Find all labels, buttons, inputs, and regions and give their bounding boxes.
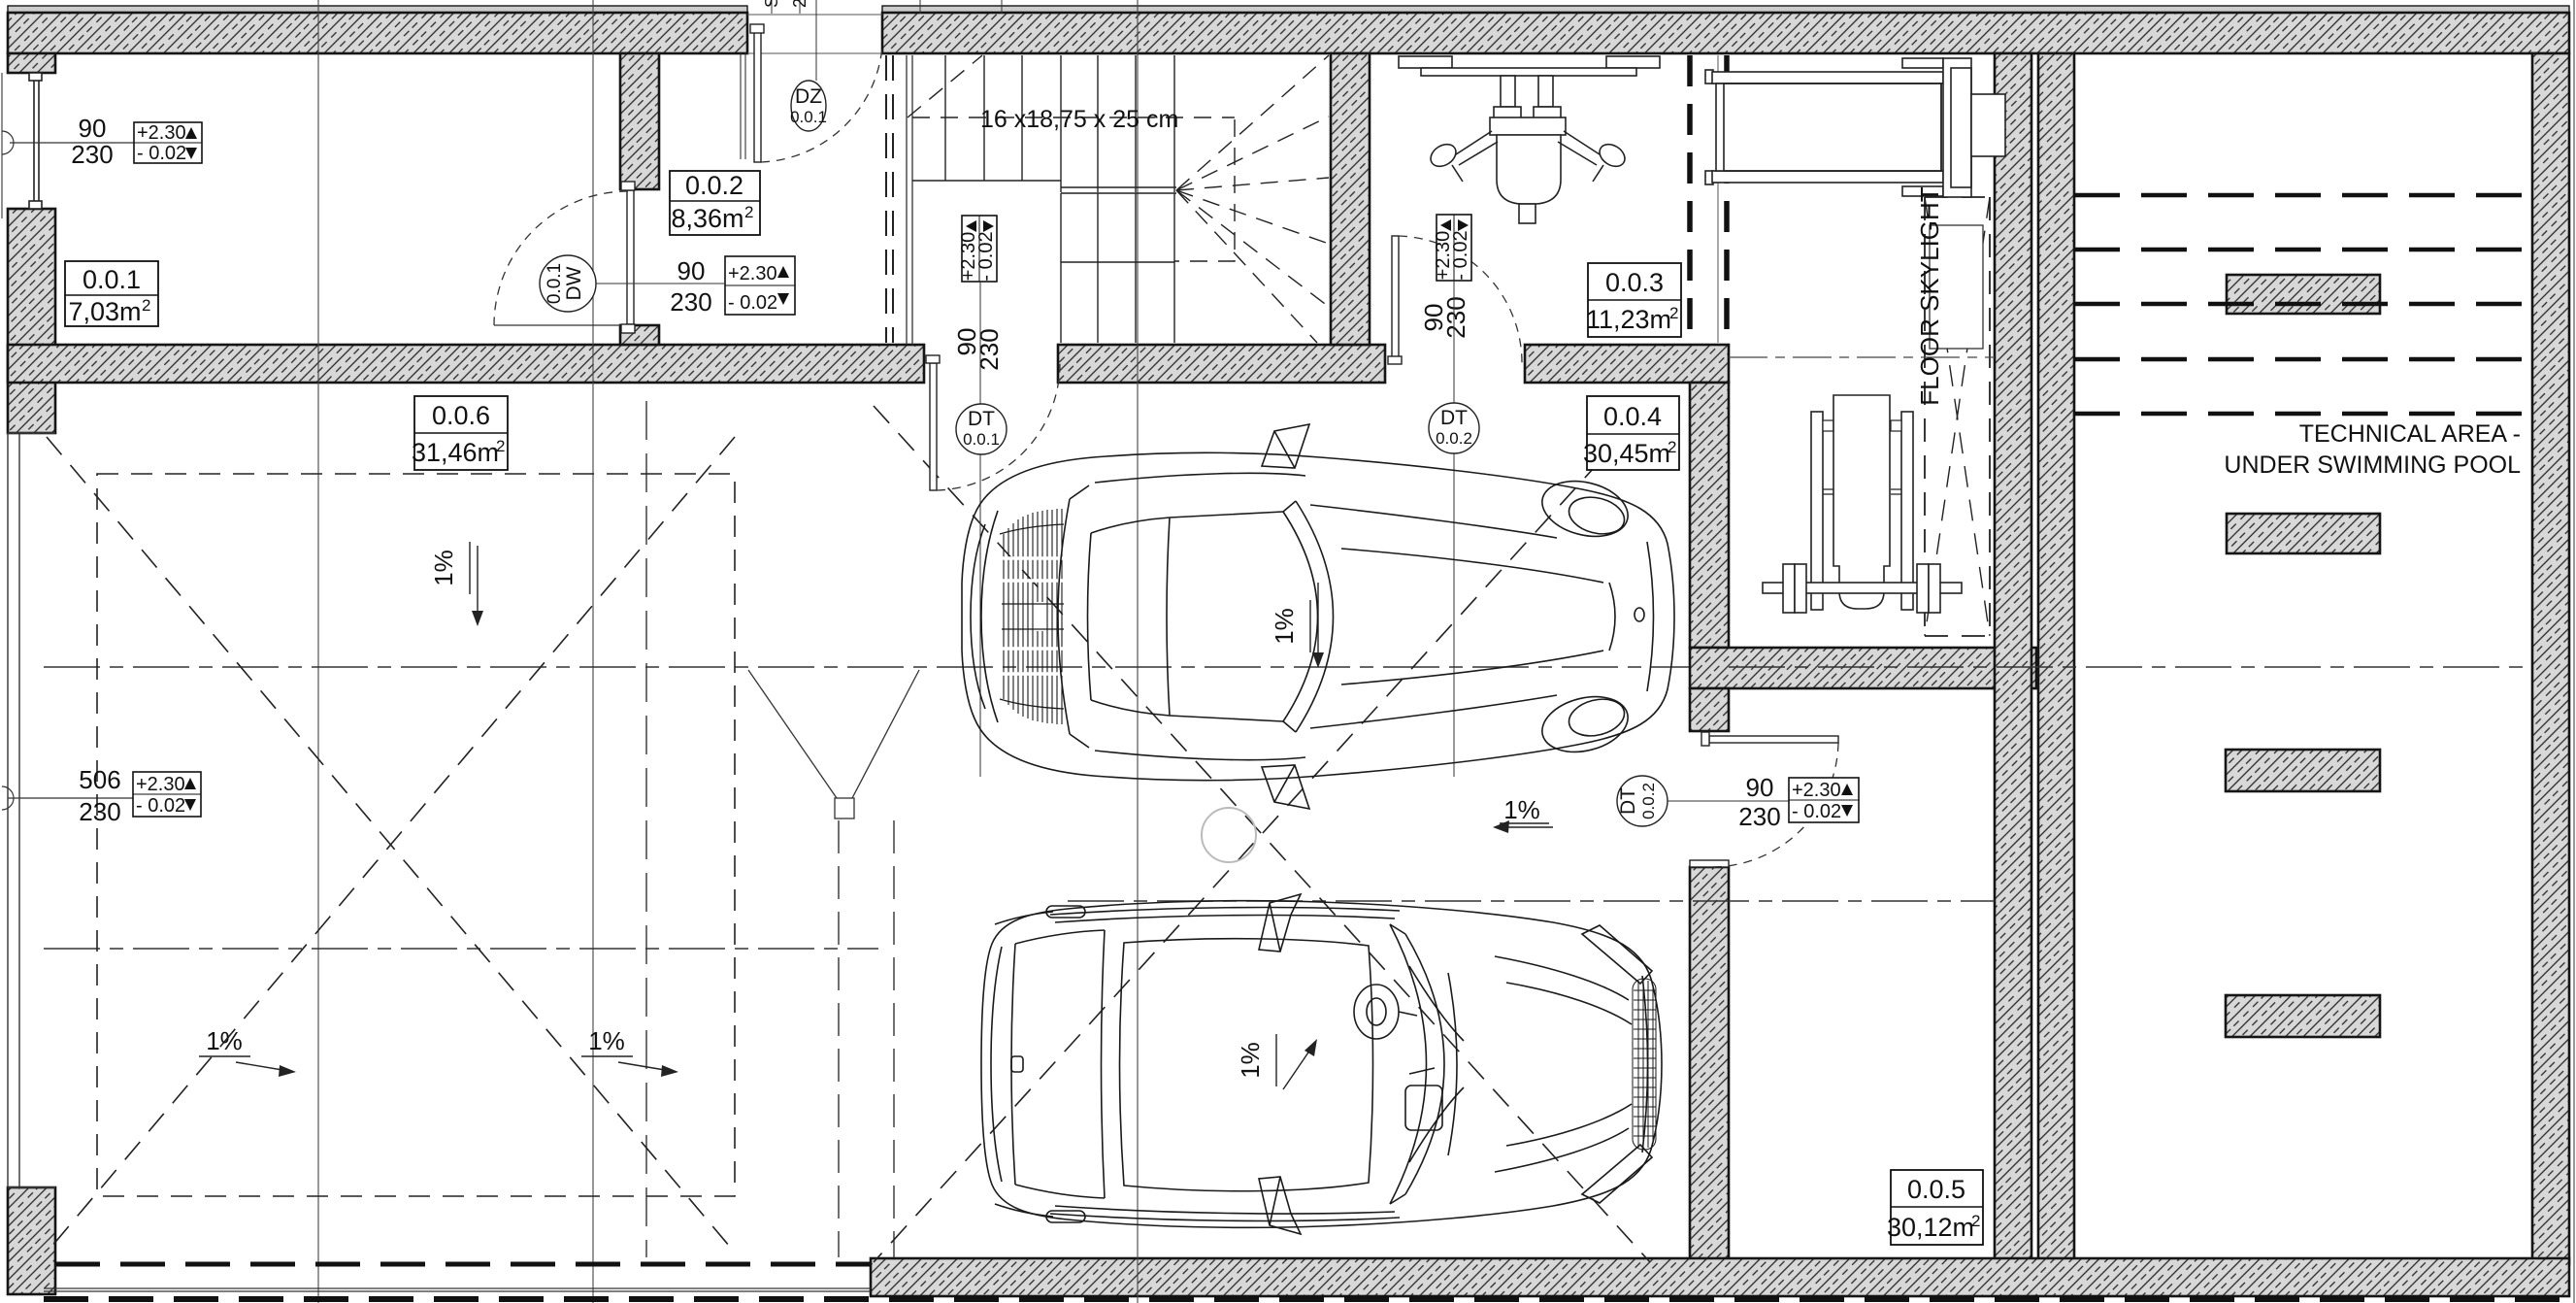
svg-text:- 0.02: - 0.02	[728, 292, 777, 314]
svg-text:1%: 1%	[206, 1026, 243, 1055]
svg-text:230: 230	[974, 328, 1004, 370]
svg-text:2: 2	[744, 203, 753, 221]
svg-text:0.0.5: 0.0.5	[1907, 1175, 1965, 1204]
svg-text:- 0.02: - 0.02	[1450, 230, 1471, 280]
svg-text:30,12m: 30,12m	[1887, 1213, 1974, 1242]
svg-text:- 0.02: - 0.02	[137, 143, 186, 164]
svg-text:+2.30: +2.30	[728, 263, 777, 284]
svg-text:90: 90	[79, 114, 107, 143]
svg-text:0.0.2: 0.0.2	[1436, 429, 1472, 448]
svg-text:0.0.2: 0.0.2	[1639, 783, 1658, 819]
svg-text:+2.30: +2.30	[1792, 780, 1841, 801]
svg-text:30,45m: 30,45m	[1583, 439, 1670, 468]
svg-text:0.0.1: 0.0.1	[545, 263, 565, 304]
svg-text:2: 2	[142, 296, 150, 315]
svg-text:230: 230	[71, 140, 113, 169]
svg-text:+2.30: +2.30	[136, 774, 185, 795]
svg-text:DT: DT	[1440, 407, 1468, 429]
svg-text:2: 2	[1668, 438, 1676, 456]
svg-text:230: 230	[670, 287, 711, 317]
svg-text:- 0.02: - 0.02	[1792, 801, 1841, 822]
svg-text:8,36m: 8,36m	[671, 204, 743, 233]
svg-text:DT: DT	[968, 408, 995, 430]
svg-text:16 x18,75 x 25 cm: 16 x18,75 x 25 cm	[980, 106, 1178, 133]
svg-text:0.0.6: 0.0.6	[432, 401, 490, 430]
svg-text:2: 2	[496, 437, 505, 455]
svg-text:UNDER SWIMMING POOL: UNDER SWIMMING POOL	[2224, 451, 2521, 479]
svg-text:+2.30: +2.30	[137, 122, 186, 144]
svg-text:2: 2	[1669, 304, 1678, 322]
svg-text:1%: 1%	[588, 1026, 625, 1055]
svg-text:1%: 1%	[1236, 1042, 1265, 1079]
svg-text:7,03m: 7,03m	[68, 297, 141, 326]
svg-text:S3: S3	[762, 0, 781, 8]
svg-text:0.0.4: 0.0.4	[1603, 402, 1662, 431]
svg-text:2: 2	[1971, 1212, 1980, 1230]
svg-text:0.0.3: 0.0.3	[1605, 268, 1664, 297]
svg-text:DW: DW	[563, 266, 585, 300]
svg-text:90: 90	[677, 256, 706, 285]
svg-text:- 0.02: - 0.02	[136, 795, 185, 817]
svg-text:1%: 1%	[429, 550, 458, 586]
svg-text:506: 506	[79, 765, 120, 794]
svg-text:0.0.1: 0.0.1	[790, 108, 827, 126]
svg-text:- 0.02: - 0.02	[975, 231, 997, 281]
svg-text:DT: DT	[1617, 787, 1639, 815]
svg-text:0.0.2: 0.0.2	[685, 171, 743, 200]
svg-text:2: 2	[790, 0, 809, 8]
svg-text:0.0.1: 0.0.1	[963, 430, 1000, 449]
svg-text:230: 230	[1441, 296, 1470, 338]
svg-text:230: 230	[79, 797, 120, 826]
svg-text:230: 230	[1738, 802, 1780, 831]
svg-text:90: 90	[1746, 773, 1774, 802]
svg-text:FLOOR SKYLIGHT: FLOOR SKYLIGHT	[1915, 186, 1944, 405]
svg-text:DZ: DZ	[795, 85, 822, 108]
svg-text:1%: 1%	[1270, 608, 1299, 645]
svg-text:11,23m: 11,23m	[1586, 305, 1671, 334]
svg-text:0.0.1: 0.0.1	[83, 265, 141, 294]
svg-text:31,46m: 31,46m	[412, 438, 499, 467]
svg-text:1%: 1%	[1503, 795, 1540, 824]
svg-text:TECHNICAL AREA -: TECHNICAL AREA -	[2299, 420, 2521, 448]
